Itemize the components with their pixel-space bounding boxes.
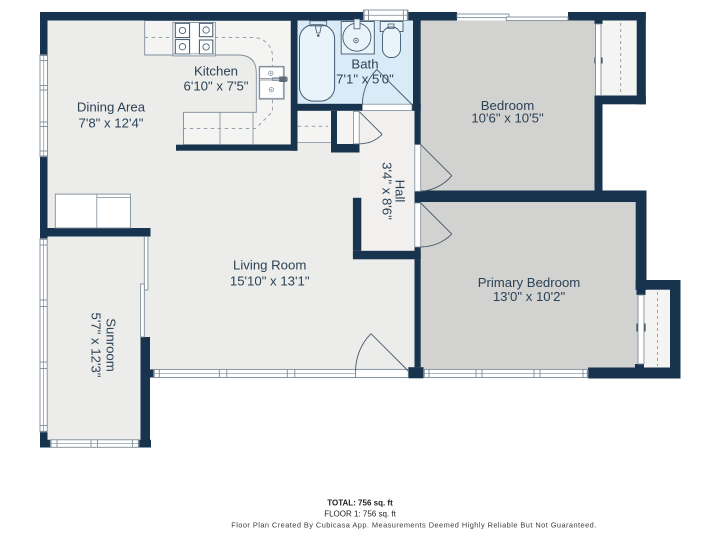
svg-text:6'10" x 7'5": 6'10" x 7'5" <box>184 78 249 93</box>
svg-text:FLOOR 1: 756 sq. ft: FLOOR 1: 756 sq. ft <box>324 510 396 519</box>
svg-text:13'0" x 10'2": 13'0" x 10'2" <box>493 289 566 304</box>
svg-text:Dining Area: Dining Area <box>77 99 146 114</box>
svg-text:Primary Bedroom: Primary Bedroom <box>478 275 581 290</box>
svg-text:Bath: Bath <box>351 56 378 71</box>
svg-text:5'7" x 12'3": 5'7" x 12'3" <box>89 313 104 378</box>
svg-text:7'1" x 5'0": 7'1" x 5'0" <box>336 71 394 86</box>
svg-text:7'8" x 12'4": 7'8" x 12'4" <box>79 115 144 130</box>
svg-text:Sunroom: Sunroom <box>104 318 119 372</box>
svg-text:TOTAL: 756 sq. ft: TOTAL: 756 sq. ft <box>327 498 393 507</box>
svg-text:Floor Plan Created By Cubicasa: Floor Plan Created By Cubicasa App. Meas… <box>231 521 596 530</box>
svg-text:Kitchen: Kitchen <box>194 63 238 78</box>
svg-text:15'10" x 13'1": 15'10" x 13'1" <box>230 273 310 288</box>
svg-text:Living Room: Living Room <box>233 258 306 273</box>
svg-text:10'6" x 10'5": 10'6" x 10'5" <box>471 110 544 125</box>
svg-text:3'4" x 8'6": 3'4" x 8'6" <box>380 162 395 220</box>
